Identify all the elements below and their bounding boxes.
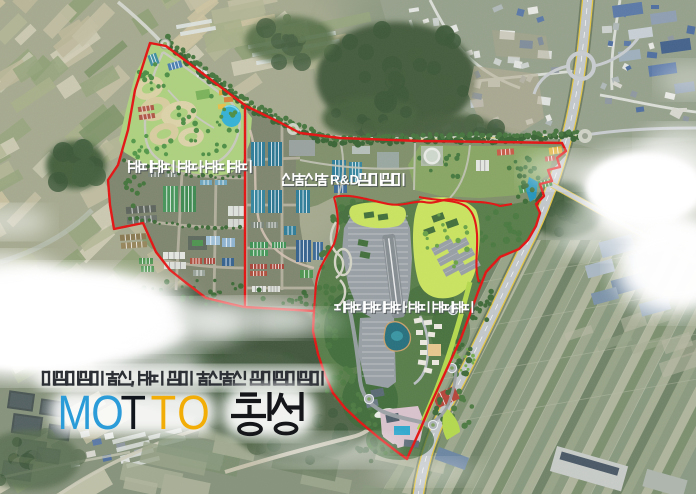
svg-text:O: O — [177, 385, 209, 440]
svg-text:R&D: R&D — [330, 173, 359, 188]
svg-text:M: M — [57, 385, 92, 440]
svg-text:T: T — [121, 385, 146, 440]
svg-text:O: O — [91, 385, 123, 440]
svg-text:T: T — [151, 385, 176, 440]
